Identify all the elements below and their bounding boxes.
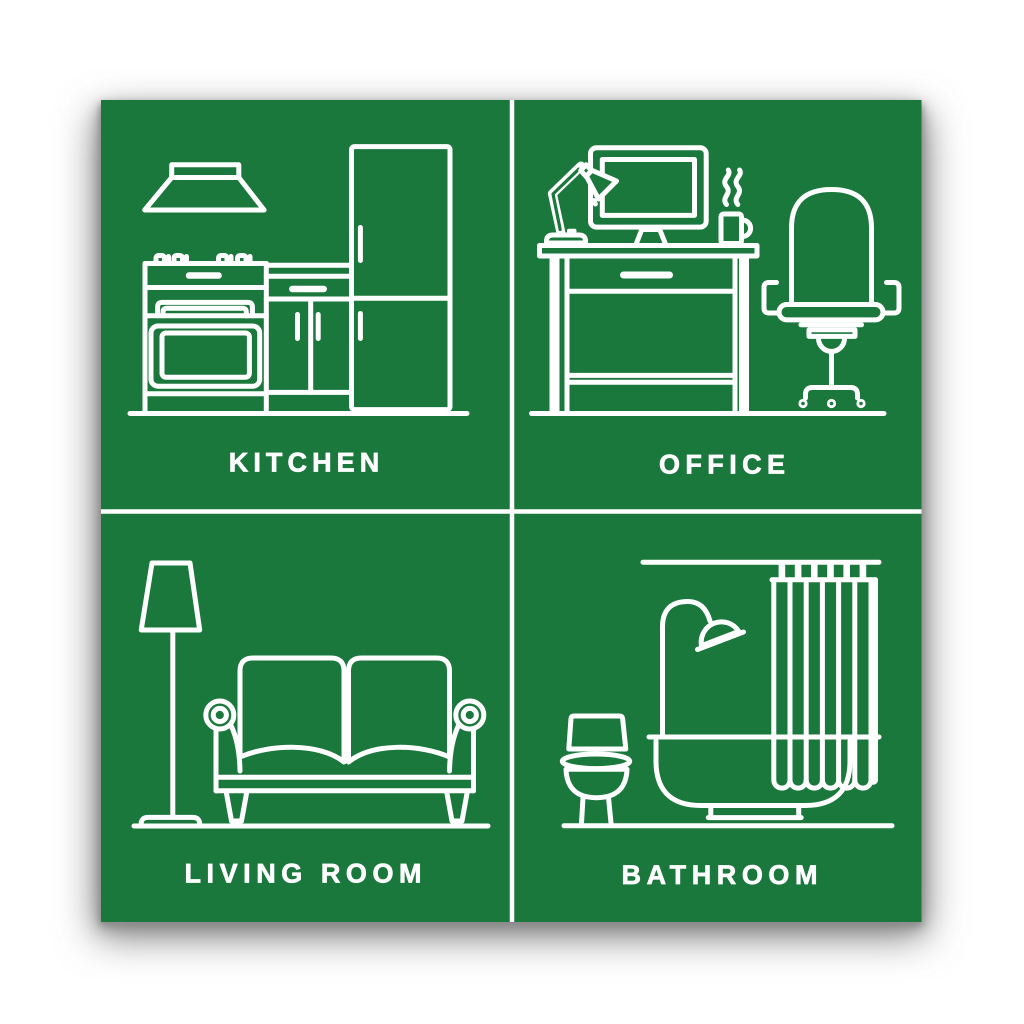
svg-text:OFFICE: OFFICE [659, 450, 785, 480]
svg-text:BATHROOM: BATHROOM [622, 860, 818, 890]
